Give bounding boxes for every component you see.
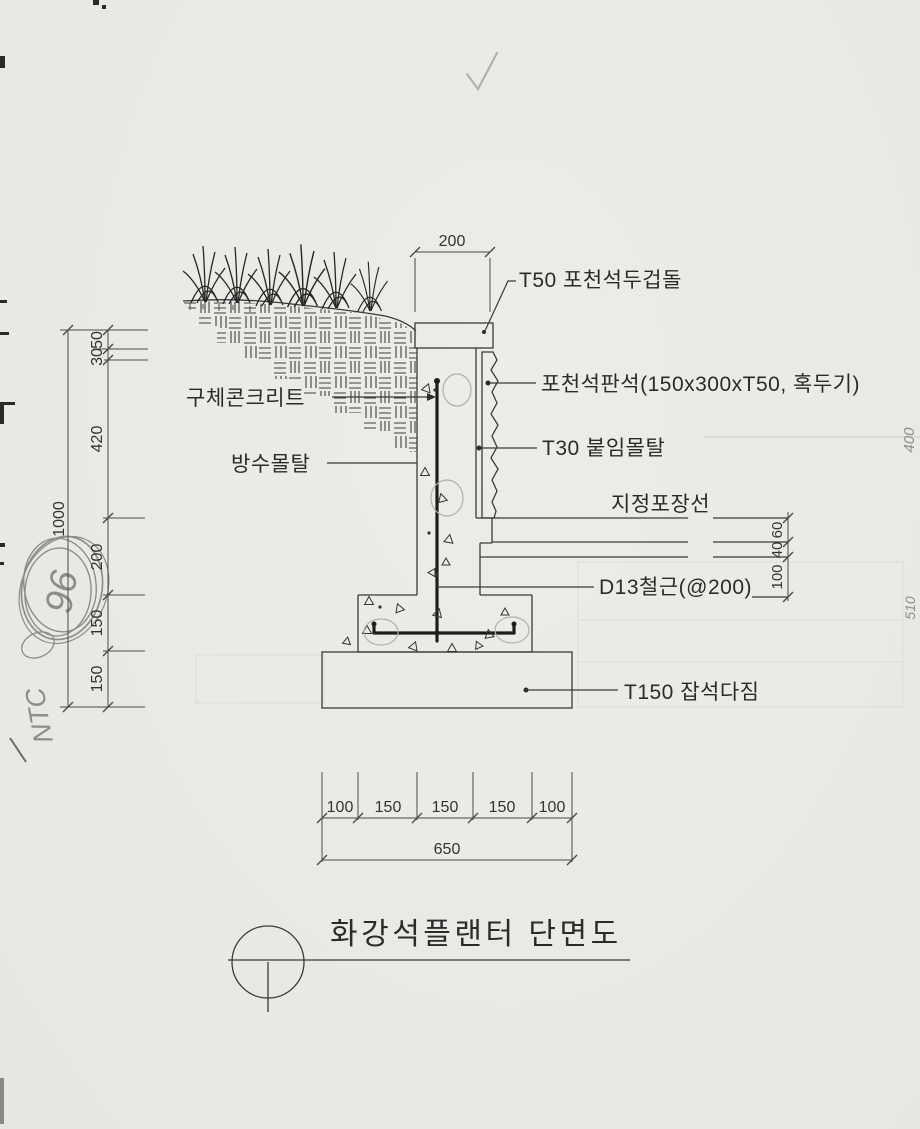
dim-left-30: 30	[89, 348, 106, 366]
dim-bottom-total: 650	[434, 841, 461, 858]
scanned-drawing-page: 96 NTC 400 510	[0, 0, 920, 1129]
dim-right-40: 40	[769, 542, 786, 559]
dim-top-width: 200	[439, 233, 466, 250]
leader-concrete-arrow	[427, 393, 436, 401]
dim-bottom-150c: 150	[489, 799, 516, 816]
dim-left-150b: 150	[89, 666, 106, 693]
dim-bottom-150a: 150	[375, 799, 402, 816]
edge-streak	[0, 1078, 4, 1124]
dim-left-total: 1000	[51, 501, 68, 537]
edge-text-lower: 510	[902, 596, 918, 620]
callout-mortar: T30 붙임몰탈	[542, 437, 665, 460]
dim-bottom-150b: 150	[432, 799, 459, 816]
planter-soil	[183, 244, 417, 452]
soil-hatch	[183, 301, 417, 452]
dimension-lines	[60, 247, 793, 865]
edge-text-upper: 400	[901, 427, 918, 453]
check-mark	[467, 53, 497, 89]
section-drawing-svg: 96 NTC 400 510	[0, 0, 920, 1129]
dim-left-ticklines	[60, 330, 148, 707]
pencil-circled-number: 96	[38, 567, 87, 617]
dim-right-100: 100	[769, 564, 786, 589]
callout-waterproof: 방수몰탈	[231, 453, 310, 476]
drawing-title: 화강석플랜터 단면도	[330, 918, 622, 951]
dim-top-lines	[415, 252, 490, 312]
callout-rubble: T150 잡석다짐	[624, 681, 759, 704]
dim-left-150a: 150	[89, 610, 106, 637]
callout-concrete: 구체콘크리트	[186, 387, 305, 410]
pencil-annotations: 96 NTC 400 510	[4, 53, 918, 745]
dim-left-420: 420	[89, 426, 106, 453]
rubble-base	[322, 652, 572, 708]
coping-stone	[415, 323, 493, 348]
footing	[358, 595, 532, 652]
dim-left-50: 50	[89, 331, 106, 349]
edge-scratch	[10, 738, 26, 762]
dimension-labels: 200 50 30 420 200 150 150 1000 60 40 100…	[51, 233, 786, 858]
edge-specks	[0, 0, 106, 565]
dim-right-60: 60	[769, 522, 786, 539]
callout-rebar: D13철근(@200)	[599, 576, 752, 599]
dim-bottom-100b: 100	[539, 799, 566, 816]
scan-artifacts	[0, 0, 920, 1124]
leader-coping	[484, 281, 516, 333]
dim-tick-slashes	[63, 247, 793, 865]
callout-facing: 포천석판석(150x300xT50, 혹두기)	[541, 373, 860, 396]
dim-left-chain-lines	[68, 330, 108, 707]
pencil-note: NTC	[19, 685, 58, 745]
callout-paving: 지정포장선	[611, 493, 710, 516]
callout-coping: T50 포천석두겁돌	[519, 269, 682, 292]
leader-dots	[427, 330, 529, 693]
title-block: 화강석플랜터 단면도	[228, 918, 630, 1012]
dim-left-200: 200	[89, 544, 106, 571]
stone-facing	[482, 352, 498, 518]
dim-bottom-100a: 100	[327, 799, 354, 816]
